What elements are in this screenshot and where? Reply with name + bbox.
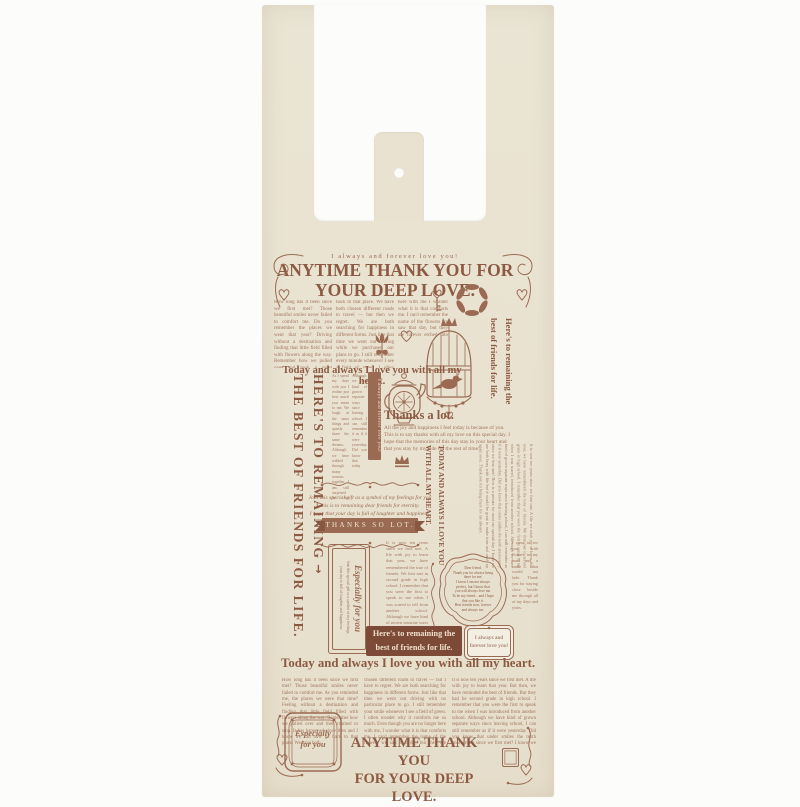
body-column: It is now ten years since we first met. … <box>386 540 428 624</box>
flourish-top-right-icon <box>502 251 536 309</box>
friends-banner: Here's to remaining the best of friends … <box>366 626 462 656</box>
body-column: How long has it been since we first met?… <box>274 300 332 368</box>
footer-headline-line2: FOR YOUR DEEP LOVE. <box>346 770 482 806</box>
newsprint-design: I always and forever love you! ANYTIME T… <box>270 248 546 793</box>
friends-banner-line2: best of friends for life. <box>366 641 462 655</box>
especially-box-small-line: Join this special gift as a symbol of my… <box>344 549 351 647</box>
vertical-ribbon: I always and forever love you! <box>368 372 381 460</box>
especially-box: Especially for you Join this special gif… <box>328 544 370 654</box>
arrow-ornament-icon: → <box>312 564 325 575</box>
heart-icon <box>399 329 414 343</box>
flourish-bottom-right-icon <box>506 726 538 786</box>
badge-line: I know I am not always <box>449 580 497 585</box>
footer-headline: ANYTIME THANK YOU FOR YOUR DEEP LOVE. <box>346 734 482 807</box>
tulip-icon <box>374 332 390 360</box>
love-badge: ◆ I always and forever love you! <box>464 625 514 660</box>
especially-stamp-text: Especially for you <box>290 728 336 750</box>
handle-cutout <box>314 5 486 221</box>
especially-stamp: Especially for you <box>282 710 344 774</box>
bottom-headline: Today and always I love you with all my … <box>273 656 543 671</box>
thanks-a-lot-headline: Thanks a lot. <box>384 408 494 423</box>
love-badge-line2: forever love you! <box>468 642 510 650</box>
badge-line: and always too. <box>449 608 497 613</box>
especially-box-small-line: your day is full of laughter and happine… <box>337 549 344 647</box>
thanks-so-lot-banner: THANKS SO LOT. <box>322 518 418 533</box>
scalloped-badge-text: Dear friend, Thank you for always being … <box>449 566 497 616</box>
stamp-line2: for you <box>290 739 336 750</box>
gift-bag: I always and forever love you! ANYTIME T… <box>262 5 554 797</box>
especially-box-title: Especially for you <box>351 549 365 647</box>
hanger-tab <box>374 132 424 221</box>
product-photo: I always and forever love you! ANYTIME T… <box>0 0 800 800</box>
love-badge-line1: I always and <box>468 634 510 642</box>
crown-icon <box>393 454 411 468</box>
swirl-divider-icon <box>320 476 420 492</box>
top-tagline: I always and forever love you! <box>270 253 520 260</box>
hanger-hole <box>394 168 404 178</box>
stamp-line1: Especially <box>290 728 336 739</box>
scalloped-badge: Dear friend, Thank you for always being … <box>437 550 509 630</box>
body-column: I came to see you with flowers in my han… <box>512 540 538 632</box>
footer-headline-line1: ANYTIME THANK YOU <box>346 734 482 770</box>
body-column: Although we have kind of grown separate … <box>352 374 367 470</box>
especially-box-text: Especially for you Join this special gif… <box>331 549 365 647</box>
love-badge-text: I always and forever love you! <box>467 628 511 657</box>
wreath-icon <box>453 281 491 319</box>
top-headline-line1: ANYTIME THANK YOU FOR <box>270 261 520 281</box>
friends-banner-line1: Here's to remaining the <box>366 627 462 641</box>
